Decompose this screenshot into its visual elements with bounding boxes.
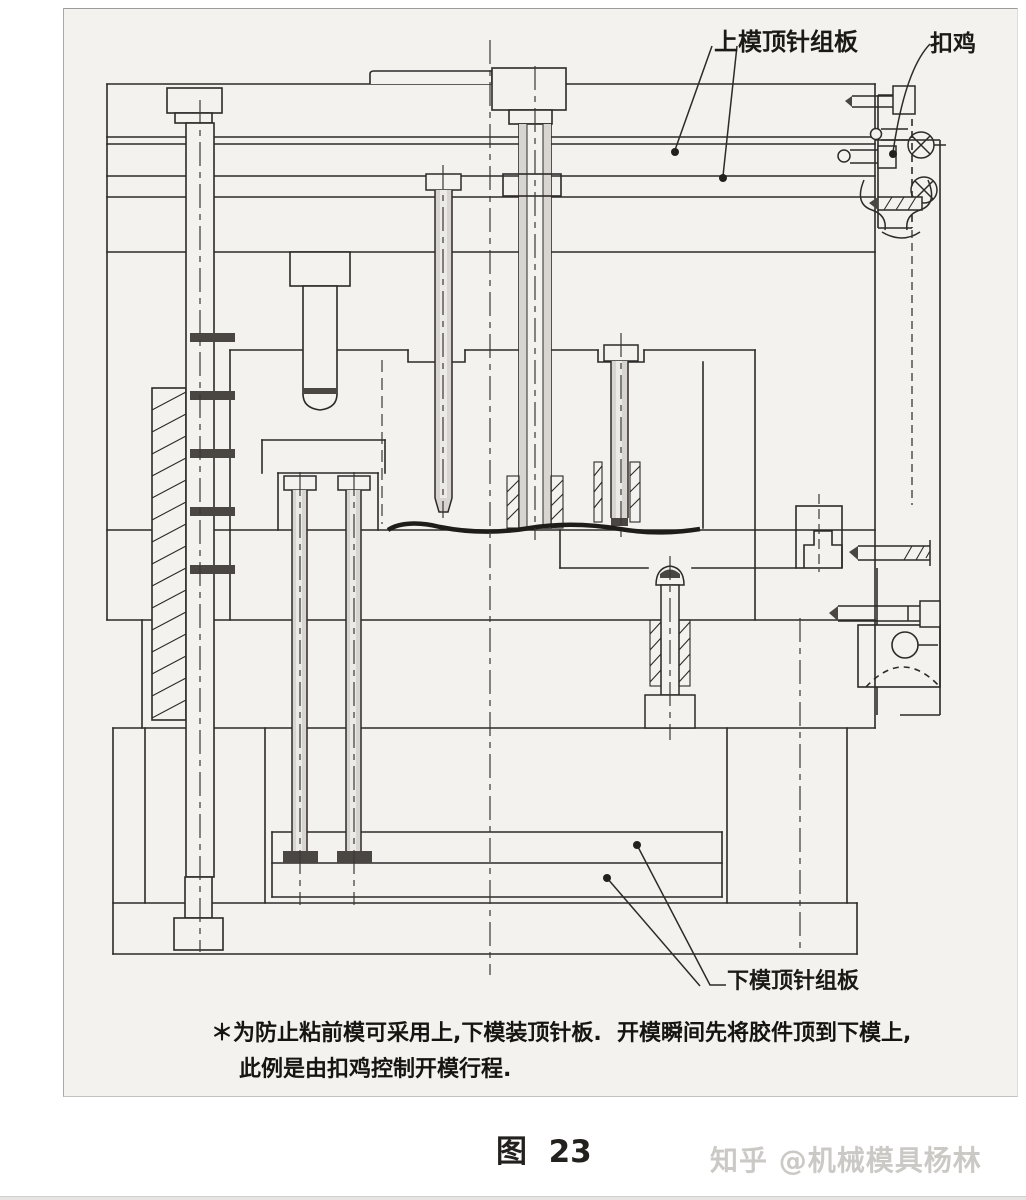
upper-ejector-pin-right — [594, 345, 640, 526]
mold-plate-outlines — [107, 84, 875, 954]
watermark-text: 知乎 @机械模具杨林 — [710, 1139, 982, 1179]
hatched-pillar — [152, 388, 186, 720]
latch-screws — [829, 86, 946, 627]
molded-part-section — [388, 524, 700, 533]
latch-hook — [860, 180, 931, 238]
figure-caption: 图 23 — [496, 1126, 592, 1171]
tie-bolt-neck — [175, 113, 212, 123]
leader-upper-ejector-b — [723, 46, 737, 176]
latch-bracket — [796, 95, 940, 715]
top-low-block — [370, 71, 492, 84]
tie-bolt-collar — [185, 877, 212, 918]
leader-dots — [603, 148, 897, 882]
tie-bolt-head — [167, 88, 222, 113]
tie-bolt-foot — [174, 918, 223, 950]
footnote-line-1: ＊为防止粘前模可采用上,下模装顶针板. 开模瞬间先将胶件顶到下模上, — [211, 1015, 911, 1047]
lower-ejector-plate-label: 下模顶针组板 — [727, 963, 859, 995]
leader-lower-ejector-b — [607, 878, 700, 986]
sprue-flange — [509, 110, 552, 124]
leader-upper-ejector-a — [675, 46, 712, 150]
page-bottom-edge — [0, 1196, 1026, 1200]
left-support-column — [152, 88, 235, 950]
leader-lines — [607, 44, 930, 986]
cavity-retaining-bolt — [290, 252, 350, 410]
top-tall-block — [492, 68, 566, 110]
scanned-figure-page: 上模顶针组板 扣鸡 下模顶针组板 ＊为防止粘前模可采用上,下模装顶针板. 开模瞬… — [0, 0, 1026, 1200]
latch-lower-screws — [829, 540, 940, 627]
latch-label: 扣鸡 — [930, 24, 976, 58]
upper-ejector-plate-label: 上模顶针组板 — [714, 22, 858, 57]
footnote-line-2: 此例是由扣鸡控制开模行程. — [239, 1051, 511, 1083]
